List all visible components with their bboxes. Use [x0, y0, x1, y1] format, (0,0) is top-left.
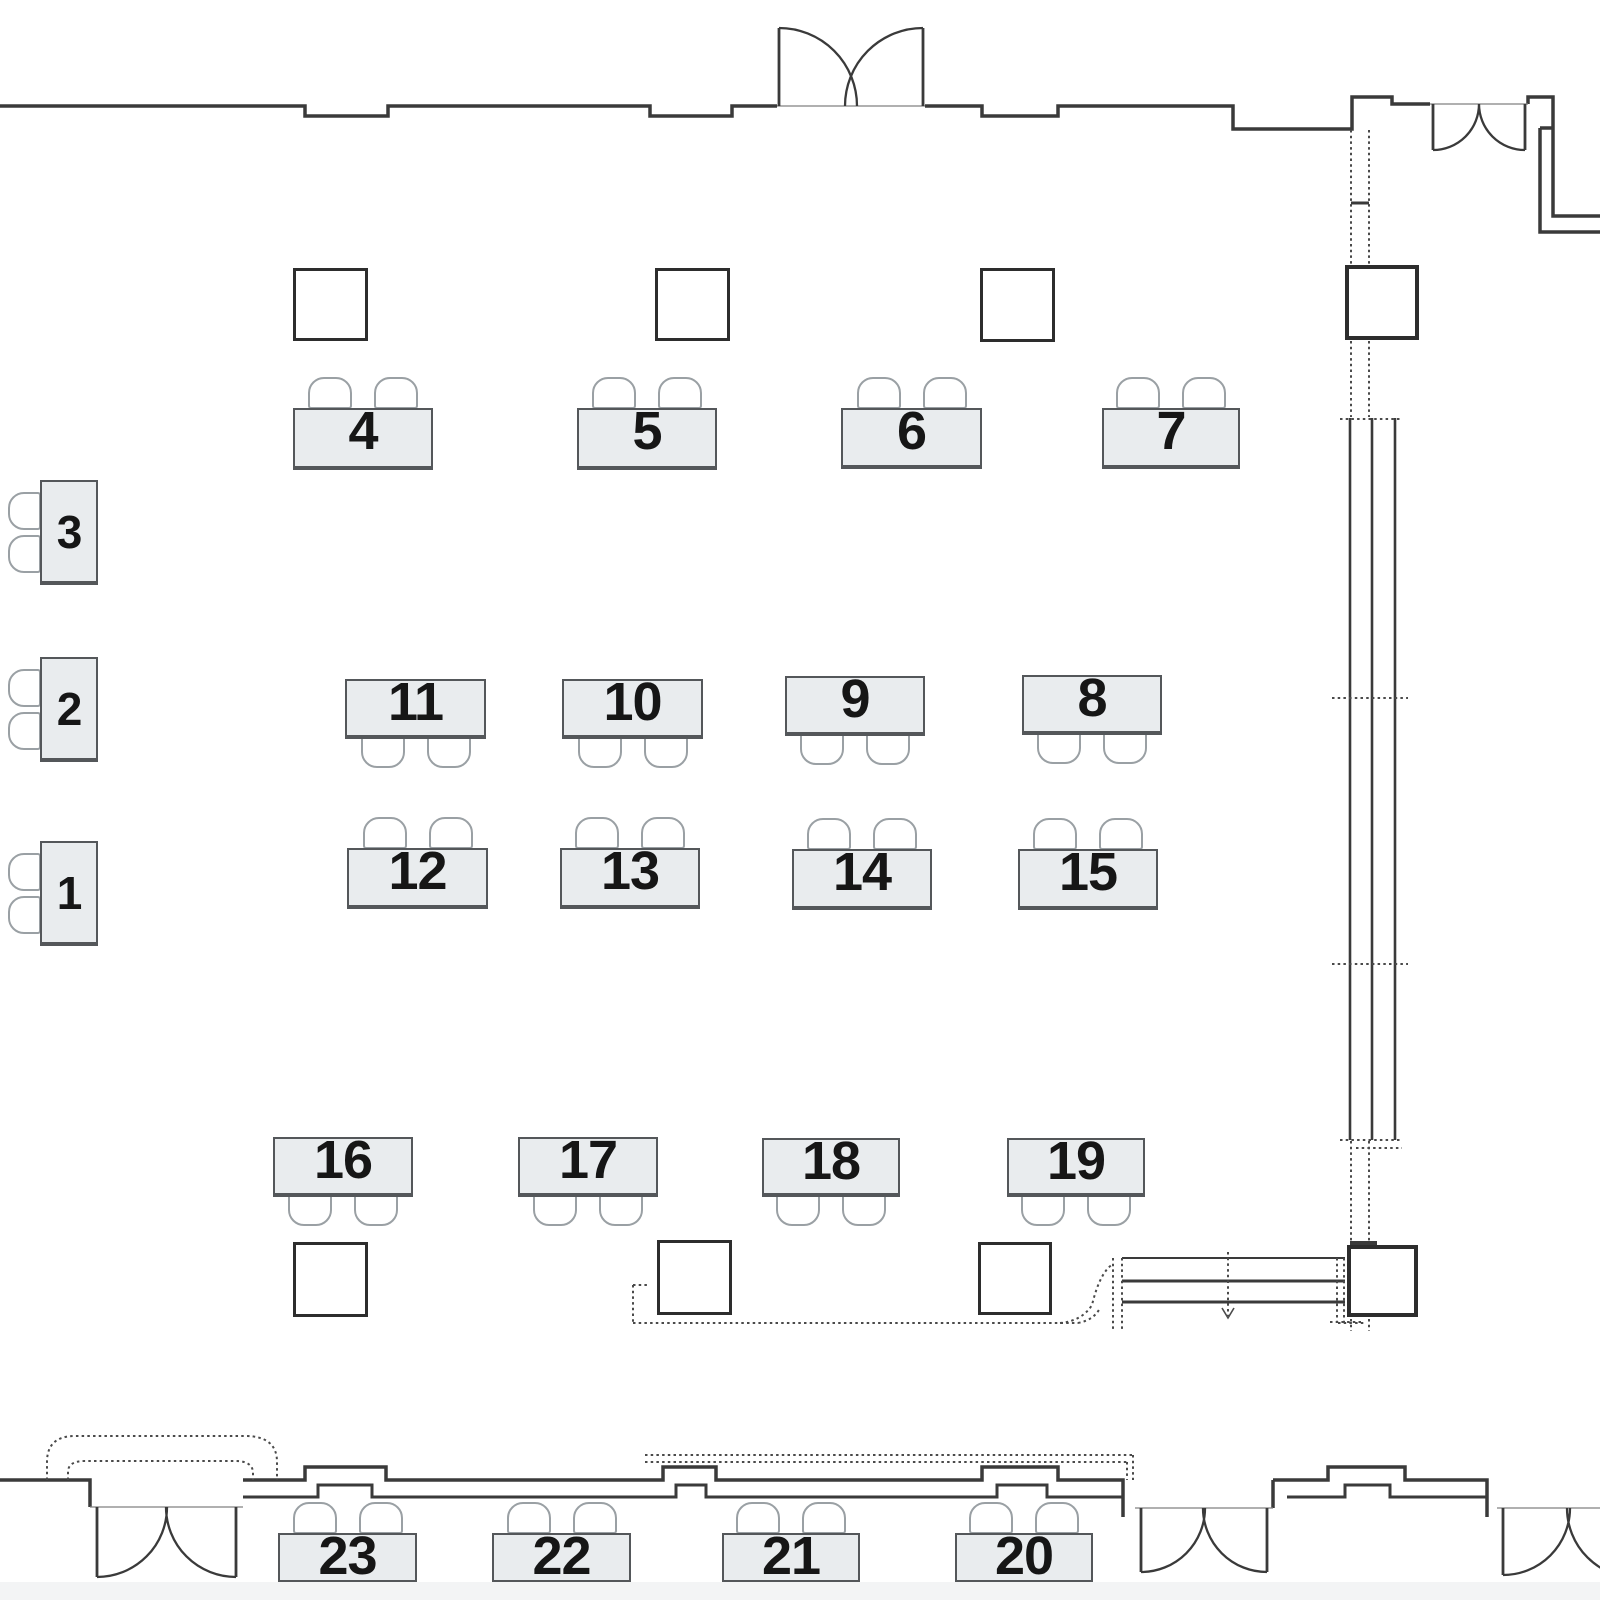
chair [1103, 732, 1147, 764]
table-2[interactable]: 2 [40, 657, 98, 760]
table-1[interactable]: 1 [40, 841, 98, 944]
chair [1037, 732, 1081, 764]
table-number-label: 12 [388, 844, 446, 898]
table-17[interactable]: 17 [518, 1137, 658, 1195]
floor-square [293, 268, 368, 341]
chair [866, 733, 910, 765]
chair [427, 736, 471, 768]
chair [800, 733, 844, 765]
chair [8, 712, 41, 750]
table-number-label: 4 [348, 404, 377, 458]
chair [8, 535, 41, 573]
table-number-label: 20 [995, 1529, 1053, 1583]
table-11[interactable]: 11 [345, 679, 486, 737]
chair [308, 377, 352, 409]
chair [354, 1194, 398, 1226]
table-9[interactable]: 9 [785, 676, 925, 734]
chair [361, 736, 405, 768]
floor-square [980, 268, 1055, 342]
table-number-label: 16 [314, 1133, 372, 1187]
table-21[interactable]: 21 [722, 1533, 860, 1582]
table-number-label: 7 [1156, 404, 1185, 458]
chair [374, 377, 418, 409]
partition-post-square [1345, 265, 1419, 340]
table-19[interactable]: 19 [1007, 1138, 1145, 1195]
table-number-label: 15 [1059, 845, 1117, 899]
floorplan-canvas: 1234567891011121314151617181920212223 [0, 0, 1600, 1600]
table-number-label: 13 [601, 844, 659, 898]
floor-square [293, 1242, 368, 1317]
table-number-label: 3 [57, 509, 82, 555]
chair [857, 377, 901, 409]
floor-square [978, 1242, 1052, 1315]
chair [288, 1194, 332, 1226]
partition-track [1350, 203, 1395, 1243]
table-20[interactable]: 20 [955, 1533, 1093, 1582]
table-10[interactable]: 10 [562, 679, 703, 737]
table-16[interactable]: 16 [273, 1137, 413, 1195]
chair [923, 377, 967, 409]
table-number-label: 1 [57, 870, 82, 916]
chair [8, 896, 41, 934]
table-8[interactable]: 8 [1022, 675, 1162, 733]
table-number-label: 18 [802, 1134, 860, 1188]
table-6[interactable]: 6 [841, 408, 982, 467]
table-14[interactable]: 14 [792, 849, 932, 908]
table-number-label: 23 [318, 1529, 376, 1583]
chair [1116, 377, 1160, 409]
chair [533, 1194, 577, 1226]
counter [1122, 1258, 1345, 1302]
floorplan-walls-svg [0, 0, 1600, 1600]
table-number-label: 21 [762, 1529, 820, 1583]
chair [578, 736, 622, 768]
table-3[interactable]: 3 [40, 480, 98, 583]
floor-square [655, 268, 730, 341]
chair [658, 377, 702, 409]
table-number-label: 2 [57, 686, 82, 732]
table-15[interactable]: 15 [1018, 849, 1158, 908]
chair [8, 492, 41, 530]
table-number-label: 8 [1077, 671, 1106, 725]
canvas-edge-strip [0, 1582, 1600, 1600]
table-7[interactable]: 7 [1102, 408, 1240, 467]
partition-post-square [1347, 1245, 1418, 1317]
table-number-label: 17 [559, 1133, 617, 1187]
table-number-label: 6 [897, 404, 926, 458]
table-number-label: 14 [833, 845, 891, 899]
door-swing-icons [97, 28, 1600, 1578]
floor-square [657, 1240, 732, 1315]
table-4[interactable]: 4 [293, 408, 433, 468]
table-number-label: 10 [603, 675, 661, 729]
table-number-label: 22 [532, 1529, 590, 1583]
chair [592, 377, 636, 409]
table-number-label: 5 [632, 404, 661, 458]
table-22[interactable]: 22 [492, 1533, 631, 1582]
chair [644, 736, 688, 768]
table-number-label: 19 [1047, 1134, 1105, 1188]
table-number-label: 9 [840, 672, 869, 726]
table-number-label: 11 [388, 675, 443, 729]
chair [1021, 1194, 1065, 1226]
table-13[interactable]: 13 [560, 848, 700, 907]
table-12[interactable]: 12 [347, 848, 488, 907]
chair [8, 853, 41, 891]
chair [8, 669, 41, 707]
chair [599, 1194, 643, 1226]
table-5[interactable]: 5 [577, 408, 717, 468]
chair [1182, 377, 1226, 409]
chair [842, 1194, 886, 1226]
table-23[interactable]: 23 [278, 1533, 417, 1582]
table-18[interactable]: 18 [762, 1138, 900, 1195]
chair [776, 1194, 820, 1226]
chair [1087, 1194, 1131, 1226]
